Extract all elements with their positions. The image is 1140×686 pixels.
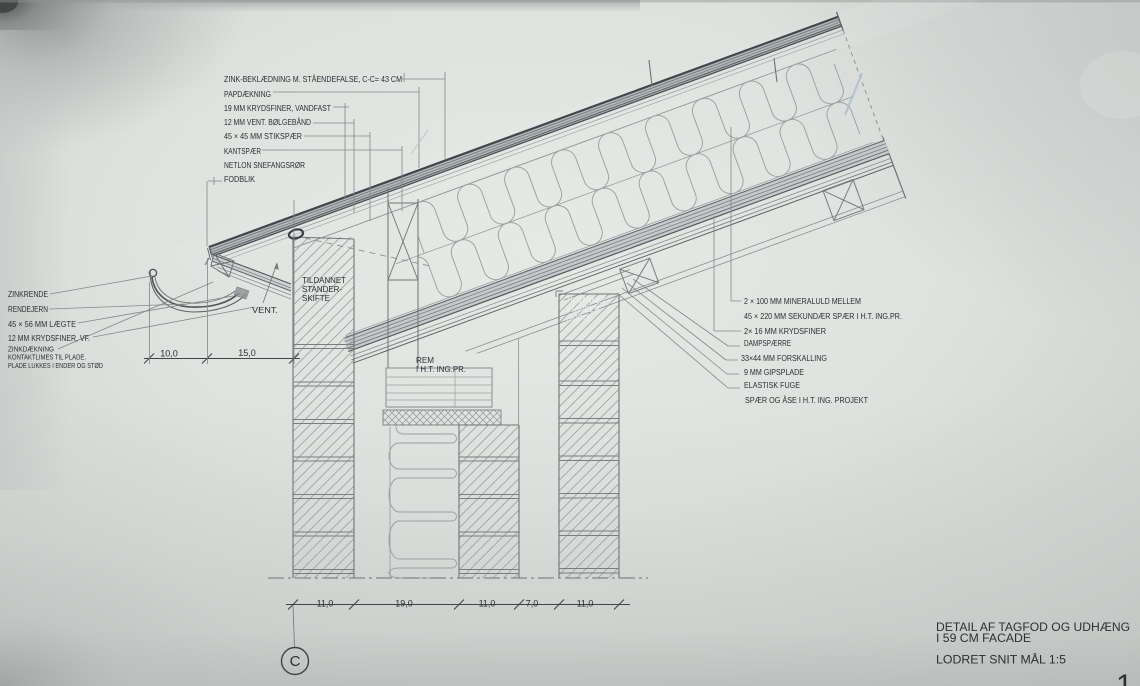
svg-text:RENDEJERN: RENDEJERN bbox=[8, 305, 48, 314]
svg-text:19,0: 19,0 bbox=[395, 599, 413, 609]
svg-text:2 × 100 MM MINERALULD MELLEM: 2 × 100 MM MINERALULD MELLEM bbox=[744, 297, 861, 306]
svg-text:FODBLIK: FODBLIK bbox=[224, 175, 256, 184]
svg-text:12 MM VENT. BØLGEBÅND: 12 MM VENT. BØLGEBÅND bbox=[224, 118, 311, 127]
svg-text:PAPDÆKNING: PAPDÆKNING bbox=[224, 90, 271, 99]
svg-text:TILDANNET: TILDANNET bbox=[302, 276, 346, 285]
svg-text:TILDANNET: TILDANNET bbox=[566, 296, 606, 305]
svg-text:KANTSPÆR: KANTSPÆR bbox=[224, 147, 261, 156]
svg-text:11,0: 11,0 bbox=[317, 599, 334, 609]
svg-text:11,0: 11,0 bbox=[577, 599, 594, 609]
svg-text:45 × 56 MM LÆGTE: 45 × 56 MM LÆGTE bbox=[8, 320, 76, 329]
svg-text:SKIFTE: SKIFTE bbox=[566, 314, 591, 323]
svg-text:ZINKRENDE: ZINKRENDE bbox=[8, 290, 48, 299]
svg-text:LODRET SNIT MÅL 1:5: LODRET SNIT MÅL 1:5 bbox=[936, 652, 1066, 667]
svg-text:7,0: 7,0 bbox=[526, 599, 539, 609]
svg-text:REM: REM bbox=[416, 356, 434, 365]
svg-text:19 MM KRYDSFINER, VANDFAST: 19 MM KRYDSFINER, VANDFAST bbox=[224, 104, 331, 113]
svg-text:45 × 220 MM SEKUNDÆR SPÆR I H.: 45 × 220 MM SEKUNDÆR SPÆR I H.T. ING.PR. bbox=[744, 312, 902, 321]
svg-text:DAMPSPÆRRE: DAMPSPÆRRE bbox=[744, 339, 791, 348]
svg-text:ELASTISK FUGE: ELASTISK FUGE bbox=[744, 381, 800, 390]
svg-text:STANDER-: STANDER- bbox=[302, 285, 342, 294]
svg-text:10,0: 10,0 bbox=[160, 349, 178, 359]
svg-text:PLADE LUKKES I ENDER OG STØD: PLADE LUKKES I ENDER OG STØD bbox=[8, 363, 103, 370]
svg-text:C: C bbox=[290, 653, 301, 670]
svg-text:I H.T. ING.PR.: I H.T. ING.PR. bbox=[416, 365, 466, 374]
svg-text:33×44 MM FORSKALLING: 33×44 MM FORSKALLING bbox=[741, 354, 827, 363]
svg-text:NETLON SNEFANGSRØR: NETLON SNEFANGSRØR bbox=[224, 161, 305, 170]
svg-text:12 MM KRYDSFINER, VF.: 12 MM KRYDSFINER, VF. bbox=[8, 334, 90, 343]
svg-text:15,0: 15,0 bbox=[238, 348, 256, 358]
svg-text:KONTAKTLIMES TIL PLADE.: KONTAKTLIMES TIL PLADE. bbox=[8, 355, 86, 362]
svg-text:I 59 CM FACADE: I 59 CM FACADE bbox=[936, 631, 1031, 645]
svg-text:STANDER-: STANDER- bbox=[566, 305, 602, 314]
svg-text:ZINK-BEKLÆDNING M. STÅENDEFALS: ZINK-BEKLÆDNING M. STÅENDEFALSE, C-C= 43… bbox=[224, 75, 402, 84]
svg-text:SKIFTE: SKIFTE bbox=[302, 294, 330, 303]
svg-text:11,0: 11,0 bbox=[479, 599, 496, 609]
svg-text:9 MM GIPSPLADE: 9 MM GIPSPLADE bbox=[744, 368, 804, 377]
svg-text:ZINKDÆKNING: ZINKDÆKNING bbox=[8, 347, 54, 354]
svg-text:VENT.: VENT. bbox=[252, 306, 278, 315]
svg-text:2× 16 MM KRYDSFINER: 2× 16 MM KRYDSFINER bbox=[744, 327, 826, 336]
svg-text:45 × 45 MM STIKSPÆR: 45 × 45 MM STIKSPÆR bbox=[224, 132, 302, 141]
svg-text:1: 1 bbox=[1116, 669, 1133, 686]
svg-text:SPÆR OG ÅSE I H.T. ING. PROJEK: SPÆR OG ÅSE I H.T. ING. PROJEKT bbox=[745, 396, 868, 405]
